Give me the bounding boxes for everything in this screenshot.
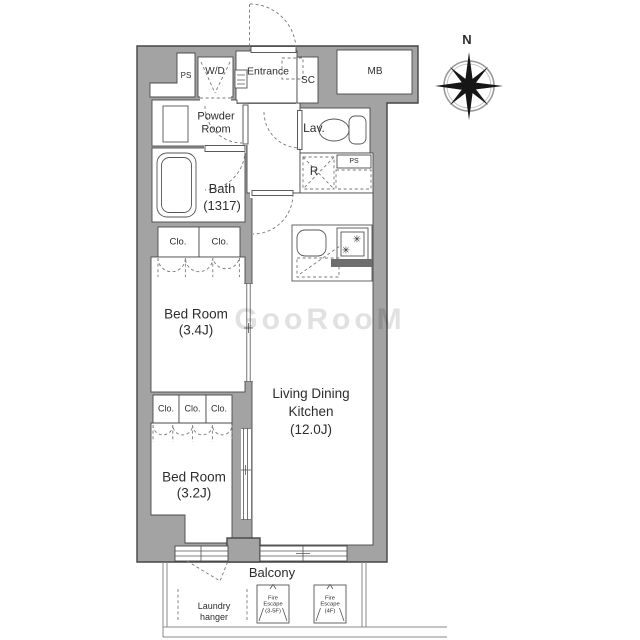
refrigerator-label: R: [310, 166, 318, 180]
meter-box-label: MB: [368, 66, 383, 78]
balcony-outline: [163, 562, 447, 637]
kitchen-counter: [292, 225, 372, 281]
balcony-pillar: [227, 538, 260, 562]
entrance-door-panel: [251, 47, 296, 53]
entrance-door-swing: [250, 4, 297, 50]
lav-door-panel: [298, 111, 303, 150]
ps-right-label: PS: [349, 157, 358, 165]
closet-2b-label: Clo.: [184, 404, 200, 415]
balcony-label: Balcony: [249, 565, 295, 581]
hallway: [247, 103, 300, 193]
bath-label: Bath(1317): [203, 181, 241, 215]
entrance-label: Entrance: [247, 66, 289, 79]
ldk-door-panel: [252, 191, 293, 196]
entrance-cabinet-icon: [235, 70, 247, 88]
bath-door-panel: [205, 146, 245, 152]
watermark: GooRooM: [234, 303, 405, 337]
compass-north-label: N: [462, 32, 471, 48]
bedroom1-label: Bed Room(3.4J): [164, 306, 228, 337]
balcony-door-swing: [187, 561, 228, 581]
powder-room-label: PowderRoom: [197, 110, 234, 135]
stove-burner-icon: ✳: [353, 235, 361, 246]
closet-2a-label: Clo.: [158, 404, 174, 415]
ps-left-label: PS: [181, 71, 192, 81]
fire-escape-1-label: FireEscape(3-5F): [263, 595, 282, 614]
lavatory-label: Lav.: [303, 121, 325, 135]
bedroom2-label: Bed Room(3.2J): [162, 469, 226, 500]
washer-dryer-label: W/D: [205, 66, 224, 78]
closet-1b-label: Clo.: [212, 236, 229, 247]
laundry-hanger-label: Laundryhanger: [198, 601, 231, 624]
ldk-label: Living DiningKitchen(12.0J): [272, 385, 349, 439]
closet-1a-label: Clo.: [170, 236, 187, 247]
compass-rose-icon: [435, 52, 503, 120]
floor-plan-canvas: GooRooM PS W/D Entrance SC MB PowderRoom…: [0, 0, 640, 640]
shoe-closet-label: SC: [301, 75, 315, 87]
powder-door-panel: [243, 105, 248, 144]
fire-escape-2-label: FireEscape(4F): [320, 595, 339, 614]
closet-2c-label: Clo.: [211, 404, 227, 415]
bedroom2-balcony-door: [175, 546, 228, 561]
vanity-sink-icon: [163, 106, 188, 142]
counter-divider: [331, 259, 372, 267]
stove-burner-icon: ✳: [342, 246, 350, 257]
